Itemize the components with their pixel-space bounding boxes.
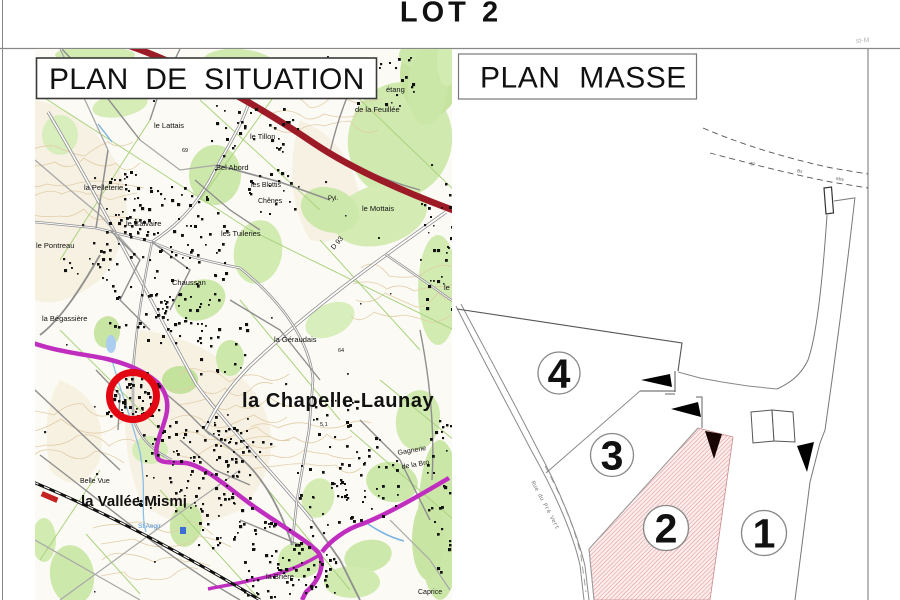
svg-text:st-M: st-M xyxy=(856,37,870,45)
svg-text:le Calvaire: le Calvaire xyxy=(126,219,161,228)
svg-text:le Pontreau: le Pontreau xyxy=(36,241,74,250)
svg-text:Bel Abord: Bel Abord xyxy=(216,163,249,172)
svg-text:2: 2 xyxy=(655,506,678,552)
svg-text:la Chapelle-Launay: la Chapelle-Launay xyxy=(242,390,435,412)
svg-text:le Lattais: le Lattais xyxy=(154,121,184,130)
svg-text:le: le xyxy=(444,283,450,292)
svg-text:PLAN MASSE: PLAN MASSE xyxy=(480,62,687,95)
svg-text:la Bégassière: la Bégassière xyxy=(42,314,87,323)
svg-text:la Pelleterie: la Pelleterie xyxy=(84,183,123,192)
svg-text:Chênes: Chênes xyxy=(258,198,283,205)
svg-text:la Brière: la Brière xyxy=(266,572,294,581)
svg-text:la Géraudais: la Géraudais xyxy=(274,335,317,344)
svg-text:les Tuileries: les Tuileries xyxy=(221,229,261,238)
svg-text:Chaussan: Chaussan xyxy=(172,278,206,287)
svg-text:Caprice: Caprice xyxy=(418,589,442,596)
svg-text:les Blottis: les Blottis xyxy=(251,182,281,189)
svg-text:St Aegir: St Aegir xyxy=(138,523,162,530)
svg-text:5,1: 5,1 xyxy=(320,422,328,428)
svg-text:3: 3 xyxy=(601,433,624,479)
svg-text:de la Feuillée: de la Feuillée xyxy=(355,105,400,114)
svg-text:le Mottais: le Mottais xyxy=(362,204,394,213)
svg-text:la Vallée Mismi: la Vallée Mismi xyxy=(81,493,187,510)
svg-text:étang: étang xyxy=(386,85,405,94)
svg-text:4: 4 xyxy=(548,351,571,397)
svg-text:64: 64 xyxy=(338,348,344,354)
svg-text:PLAN DE SITUATION: PLAN DE SITUATION xyxy=(49,63,365,96)
svg-text:Pyl.: Pyl. xyxy=(328,196,338,202)
svg-text:le Tillon: le Tillon xyxy=(250,132,275,141)
svg-text:LOT 2: LOT 2 xyxy=(400,0,502,29)
svg-text:Belle Vue: Belle Vue xyxy=(80,478,110,485)
svg-text:69: 69 xyxy=(182,148,188,154)
svg-text:1: 1 xyxy=(753,511,776,557)
